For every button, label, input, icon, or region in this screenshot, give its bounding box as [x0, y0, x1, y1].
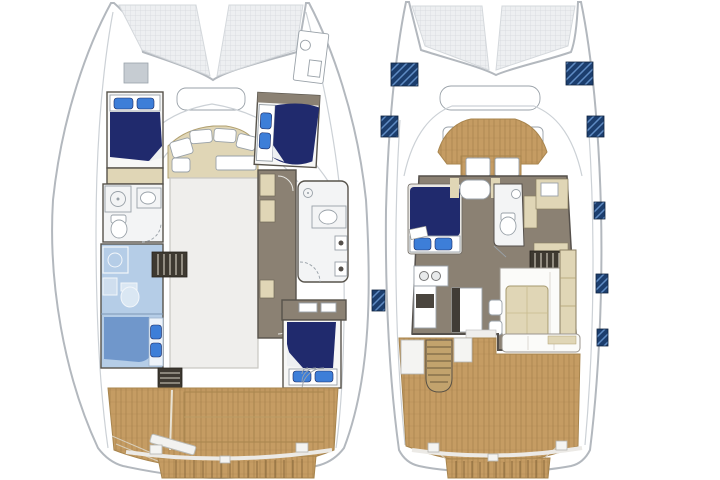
shower-dot [307, 192, 309, 194]
deck-hatch-icon [587, 116, 604, 137]
shower-dot [117, 198, 120, 201]
seat-cushion [190, 129, 213, 144]
salon-front-door [466, 158, 490, 176]
seat-cushion [172, 158, 190, 172]
sink-icon [512, 190, 521, 199]
stair-landing [401, 340, 424, 374]
lower-deck-plan [52, 3, 369, 478]
port-bow-skylight [124, 63, 148, 83]
forward-dinette [450, 178, 500, 199]
dinette-seat [450, 178, 459, 198]
ottoman [489, 300, 502, 315]
pillow-icon [151, 325, 162, 339]
oven-icon [416, 294, 434, 308]
davit-post [296, 443, 308, 452]
seat-cushion [214, 128, 237, 143]
deck-plans-canvas [0, 0, 720, 480]
hull-window-icon [372, 290, 385, 311]
hull-window-icon [596, 274, 608, 293]
dinette-table [460, 180, 490, 199]
pillow-icon [137, 98, 154, 109]
davit-post [556, 441, 567, 450]
sideboard [560, 250, 576, 334]
double-bed-icon [110, 112, 162, 161]
starboard-aft-cabin [282, 300, 346, 388]
port-head [103, 184, 163, 242]
toilet-dot [339, 267, 344, 272]
starboard-bow-locker-room [293, 30, 329, 83]
pillow-icon [151, 343, 162, 357]
main-deck-plan [372, 2, 608, 478]
companionway-steps-port [152, 252, 187, 277]
deck-hatch-icon [381, 116, 398, 137]
pillow-icon [414, 238, 431, 250]
toilet-dot [339, 241, 344, 246]
aft-stairs [426, 340, 452, 392]
hull-window-icon [594, 202, 605, 219]
starboard-head [298, 181, 348, 282]
cabin-floor [107, 168, 163, 184]
transom-clip [488, 454, 498, 461]
salon-front-door [495, 158, 519, 176]
sink-icon [141, 192, 156, 204]
deck-plans-drawing [0, 0, 720, 480]
sink-icon [420, 272, 429, 281]
toilet-icon [500, 217, 516, 235]
bow-room-cabinet [308, 60, 322, 77]
pillow-icon [259, 133, 271, 150]
sink-icon [432, 272, 441, 281]
davit-post [428, 443, 439, 452]
sink-icon [319, 210, 337, 224]
double-bed-icon [104, 317, 153, 362]
hull-window-icon [597, 329, 608, 346]
island-front [452, 288, 460, 332]
toilet-icon [111, 220, 127, 238]
cabinet [260, 200, 275, 222]
sink-icon [103, 278, 117, 295]
pillow-icon [260, 113, 272, 130]
toilet-icon [121, 287, 139, 307]
deck-hatch-icon [391, 63, 418, 86]
pillow-icon [315, 371, 333, 382]
starboard-forward-cabin [254, 92, 320, 167]
pillow-icon [435, 238, 452, 250]
salon-aft-door [466, 330, 496, 338]
shelf-locker [299, 303, 317, 312]
port-forward-cabin [107, 92, 163, 184]
davit-post [150, 445, 162, 454]
cabinet-top [541, 183, 558, 196]
dinette-table [216, 156, 256, 170]
pillow-icon [114, 98, 133, 109]
cabinet [260, 174, 275, 196]
transom-clip [220, 456, 230, 463]
deck-hatch-icon [566, 62, 593, 85]
cockpit-cabinet [454, 338, 472, 362]
sofa-cushion-pad [548, 336, 576, 344]
aft-cockpit [399, 334, 580, 464]
cabinet [524, 196, 537, 228]
cabinet [260, 280, 274, 298]
shelf-locker [321, 303, 336, 312]
